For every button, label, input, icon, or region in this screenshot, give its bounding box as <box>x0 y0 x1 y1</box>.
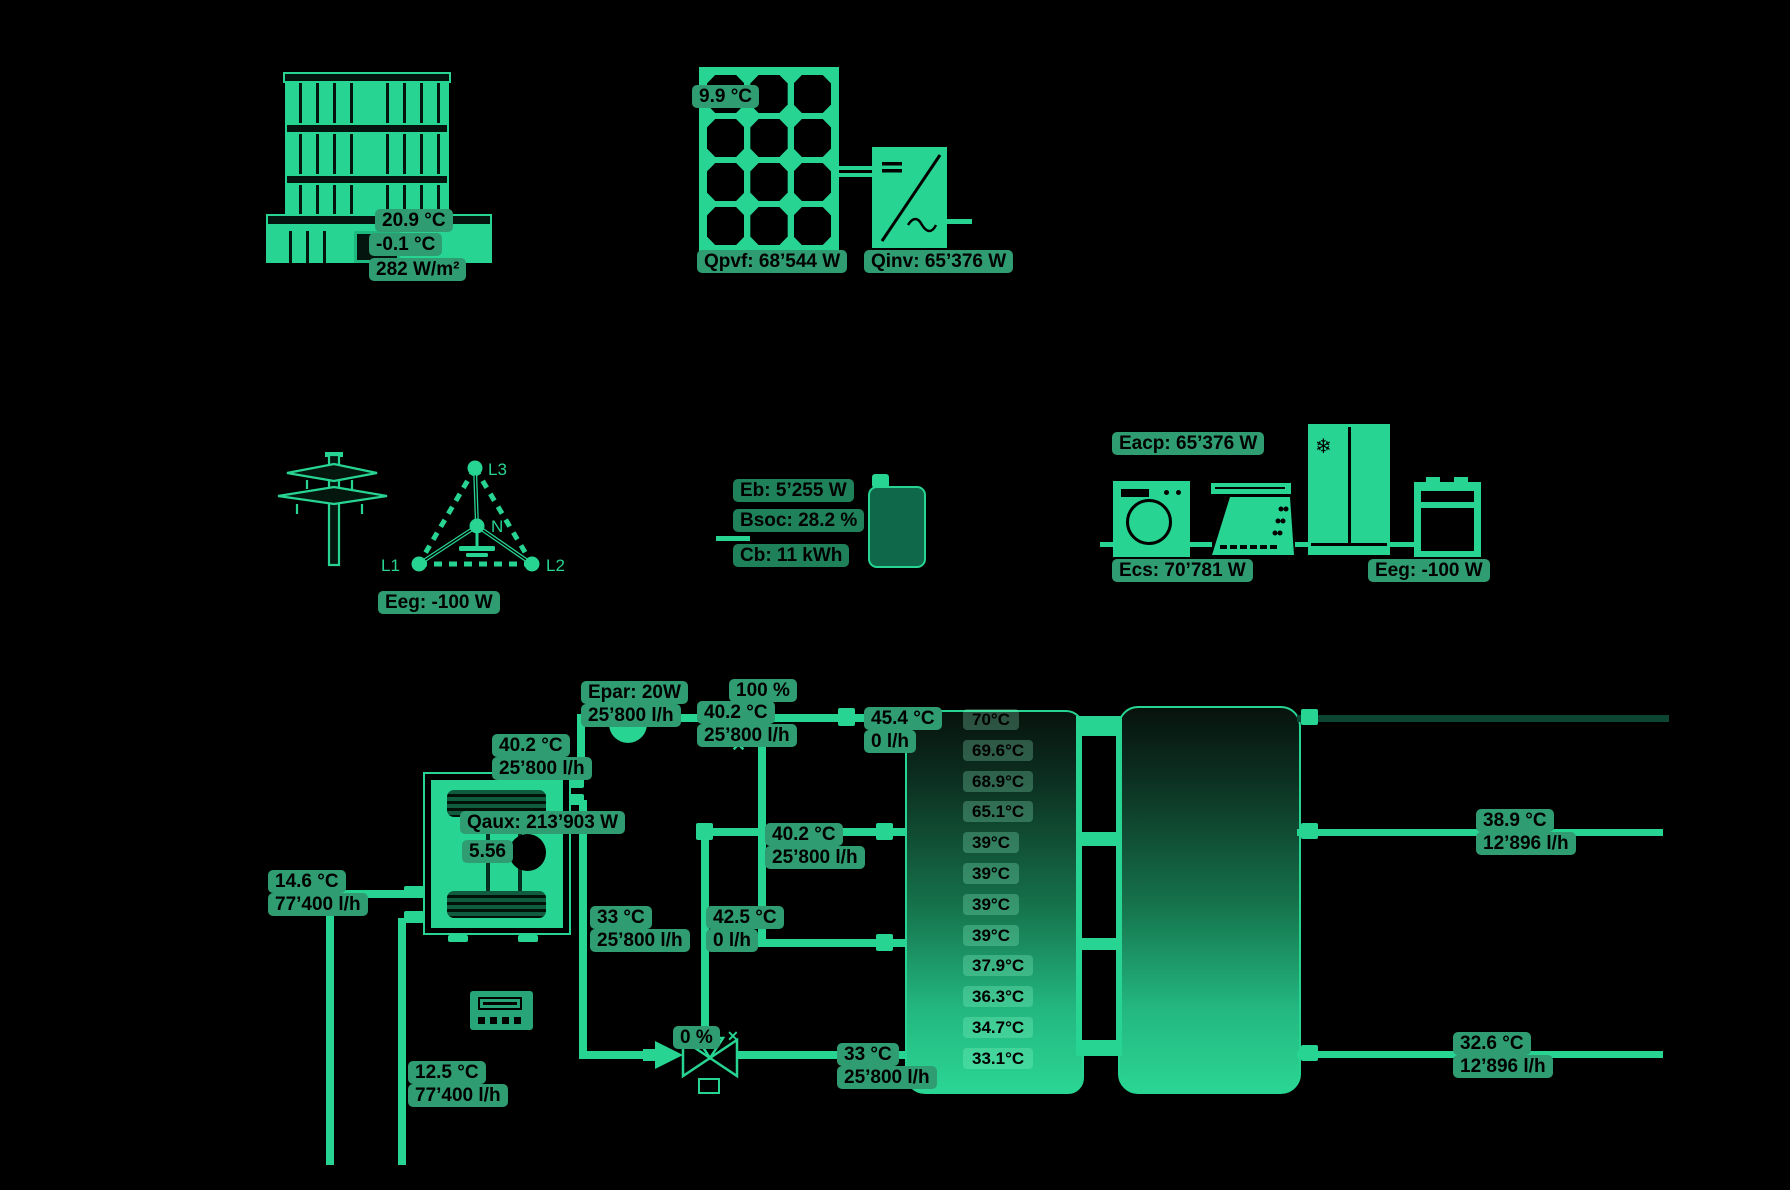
tank-temp-sensor: 39°C <box>963 832 1019 853</box>
hp-coil-bottom <box>447 891 546 918</box>
pv-temp-value: 9.9 °C <box>692 85 759 108</box>
hp-outlet-value: 25’800 l/h <box>492 757 592 780</box>
battery-eb-label: Eb: 5’255 W <box>733 479 854 502</box>
pv-cell <box>750 207 787 245</box>
tank-top-port-value: 0 l/h <box>864 730 916 753</box>
building-floor-2 <box>285 134 449 174</box>
hp-qaux-value: Qaux: 213’903 W <box>460 811 625 834</box>
tank-temp-sensor: 70°C <box>963 709 1019 730</box>
tank-upper-return-label: 42.5 °C0 l/h <box>706 906 784 952</box>
battery-cb-label: Cb: 11 kWh <box>733 544 849 567</box>
tank-upper-return-value: 42.5 °C <box>706 906 784 929</box>
phase-label-n: N <box>491 517 503 536</box>
building-roof <box>283 72 451 83</box>
appliances-eeg-value: Eeg: -100 W <box>1368 559 1490 582</box>
tank-temp-sensor: 33.1°C <box>963 1048 1033 1069</box>
tank-mid-line-value: 25’800 l/h <box>765 846 865 869</box>
building-ambient-temp-value: 20.9 °C <box>375 209 453 232</box>
dhw-return-label: 32.6 °C12’896 l/h <box>1453 1032 1553 1078</box>
controller-button[interactable] <box>478 1017 485 1024</box>
brine-out-value: 12.5 °C <box>408 1061 486 1084</box>
supply-line-label: 40.2 °C25’800 l/h <box>697 701 797 747</box>
dhw-out-label: 38.9 °C12’896 l/h <box>1476 809 1576 855</box>
tank-temp-sensor: 69.6°C <box>963 740 1033 761</box>
tank-temp-sensor: 39°C <box>963 863 1019 884</box>
hp-outlet-label: 40.2 °C25’800 l/h <box>492 734 592 780</box>
phase-label-l1: L1 <box>381 556 400 575</box>
tank-temp-sensor: 34.7°C <box>963 1017 1033 1038</box>
pv-cell <box>707 207 744 245</box>
building-slab <box>285 123 449 134</box>
battery-eb-value: Eb: 5’255 W <box>733 479 854 502</box>
inverter-icon[interactable] <box>872 147 947 248</box>
washer-door <box>1126 499 1172 545</box>
tank-bottom-line-label: 33 °C25’800 l/h <box>837 1043 937 1089</box>
phase-label-l2: L2 <box>546 556 565 575</box>
pylon-icon[interactable] <box>278 452 387 565</box>
oven-door <box>1421 508 1474 551</box>
qpvf-label: Qpvf: 68’544 W <box>697 250 847 273</box>
tank-bottom-line-value: 33 °C <box>837 1043 899 1066</box>
grid-eeg-value: Eeg: -100 W <box>378 591 500 614</box>
battery-icon[interactable] <box>868 486 926 568</box>
appliances-eacp-value: Eacp: 65’376 W <box>1112 432 1264 455</box>
building-ambient-temp-label: 20.9 °C <box>375 209 453 232</box>
tank-top-port-label: 45.4 °C0 l/h <box>864 707 942 753</box>
dhw-out-value: 12’896 l/h <box>1476 832 1576 855</box>
qpvf-value: Qpvf: 68’544 W <box>697 250 847 273</box>
tank-temp-sensor: 65.1°C <box>963 801 1033 822</box>
valve-actuator <box>698 1078 720 1094</box>
supply-line-value: 25’800 l/h <box>697 724 797 747</box>
hp-qaux-label: Qaux: 213’903 W <box>460 811 625 834</box>
building-slab <box>285 174 449 185</box>
tank-mid-line-label: 40.2 °C25’800 l/h <box>765 823 865 869</box>
pv-cell <box>794 163 831 201</box>
fridge-divider <box>1348 427 1351 543</box>
building-outdoor-temp-value: -0.1 °C <box>369 233 442 256</box>
washing-machine-icon[interactable] <box>1113 481 1190 557</box>
tank-temp-sensor: 37.9°C <box>963 955 1033 976</box>
tank-temp-sensor: 68.9°C <box>963 771 1033 792</box>
brine-out-value: 77’400 l/h <box>408 1084 508 1107</box>
appliances-ecs-value: Ecs: 70’781 W <box>1112 559 1253 582</box>
phase-node-n <box>470 519 485 534</box>
pv-cell <box>750 163 787 201</box>
tank-bottom-line-value: 25’800 l/h <box>837 1066 937 1089</box>
dhw-return-value: 32.6 °C <box>1453 1032 1531 1055</box>
dhw-return-value: 12’896 l/h <box>1453 1055 1553 1078</box>
controller-button[interactable] <box>502 1017 509 1024</box>
brine-in-label: 14.6 °C77’400 l/h <box>268 870 368 916</box>
phase-node-l3 <box>468 461 483 476</box>
mix-valve-pct-value: 0 % <box>673 1026 720 1049</box>
brine-in-value: 14.6 °C <box>268 870 346 893</box>
pump-epar-value: Epar: 20W <box>581 681 688 704</box>
pump-epar-value: 25’800 l/h <box>581 704 681 727</box>
pv-cell <box>707 119 744 157</box>
qinv-value: Qinv: 65’376 W <box>864 250 1013 273</box>
battery-bsoc-label: Bsoc: 28.2 % <box>733 509 864 532</box>
fridge-icon[interactable]: ❄ <box>1308 424 1390 555</box>
controller-display <box>478 997 522 1010</box>
schematic-canvas: L3 N L1 L2 ❄ <box>0 0 1790 1190</box>
phase-node-l1 <box>412 557 427 572</box>
ground-icon <box>459 546 495 551</box>
building-irradiance-label: 282 W/m² <box>369 258 466 281</box>
phase-label-l3: L3 <box>488 460 507 479</box>
grid-eeg-label: Eeg: -100 W <box>378 591 500 614</box>
hp-return-value: 25’800 l/h <box>590 929 690 952</box>
tank-mid-line-value: 40.2 °C <box>765 823 843 846</box>
hp-cop-label: 5.56 <box>462 840 513 863</box>
appliances-eacp-label: Eacp: 65’376 W <box>1112 432 1264 455</box>
brine-out-label: 12.5 °C77’400 l/h <box>408 1061 508 1107</box>
brine-in-value: 77’400 l/h <box>268 893 368 916</box>
pv-cell <box>794 75 831 113</box>
pv-temp-label: 9.9 °C <box>692 85 759 108</box>
battery-bsoc-value: Bsoc: 28.2 % <box>733 509 864 532</box>
pump-epar-label: Epar: 20W25’800 l/h <box>581 681 688 727</box>
building-outdoor-temp-label: -0.1 °C <box>369 233 442 256</box>
hp-compressor <box>509 834 546 871</box>
three-phase-icon[interactable]: L3 N L1 L2 <box>381 460 565 575</box>
dhw-out-value: 38.9 °C <box>1476 809 1554 832</box>
appliances-ecs-label: Ecs: 70’781 W <box>1112 559 1253 582</box>
hp-return-label: 33 °C25’800 l/h <box>590 906 690 952</box>
dishwasher-icon[interactable] <box>1208 476 1300 560</box>
controller-button[interactable] <box>490 1017 497 1024</box>
building-floor-3 <box>285 83 449 123</box>
pv-cell <box>707 163 744 201</box>
tank-temp-sensor: 39°C <box>963 925 1019 946</box>
oven-icon[interactable] <box>1414 482 1481 557</box>
pv-cell <box>750 119 787 157</box>
valve-open-pct-value: 100 % <box>729 679 797 702</box>
controller-button[interactable] <box>514 1017 521 1024</box>
hp-cop-value: 5.56 <box>462 840 513 863</box>
mix-valve-pct-label: 0 % <box>673 1026 720 1049</box>
tank-temp-sensor: 36.3°C <box>963 986 1033 1007</box>
tank-temp-sensor: 39°C <box>963 894 1019 915</box>
hp-return-value: 33 °C <box>590 906 652 929</box>
tank-top-port-value: 45.4 °C <box>864 707 942 730</box>
oven-controls <box>1421 491 1474 502</box>
pv-cell <box>794 119 831 157</box>
pv-cell <box>794 207 831 245</box>
controller-icon[interactable] <box>470 991 533 1030</box>
tank-upper-return-value: 0 l/h <box>706 929 758 952</box>
valve-open-pct-label: 100 % <box>729 679 797 702</box>
appliances-eeg-label: Eeg: -100 W <box>1368 559 1490 582</box>
battery-cb-value: Cb: 11 kWh <box>733 544 849 567</box>
building-irradiance-value: 282 W/m² <box>369 258 466 281</box>
snowflake-icon: ❄ <box>1315 434 1332 458</box>
qinv-label: Qinv: 65’376 W <box>864 250 1013 273</box>
hp-outlet-value: 40.2 °C <box>492 734 570 757</box>
phase-node-l2 <box>525 557 540 572</box>
supply-line-value: 40.2 °C <box>697 701 775 724</box>
